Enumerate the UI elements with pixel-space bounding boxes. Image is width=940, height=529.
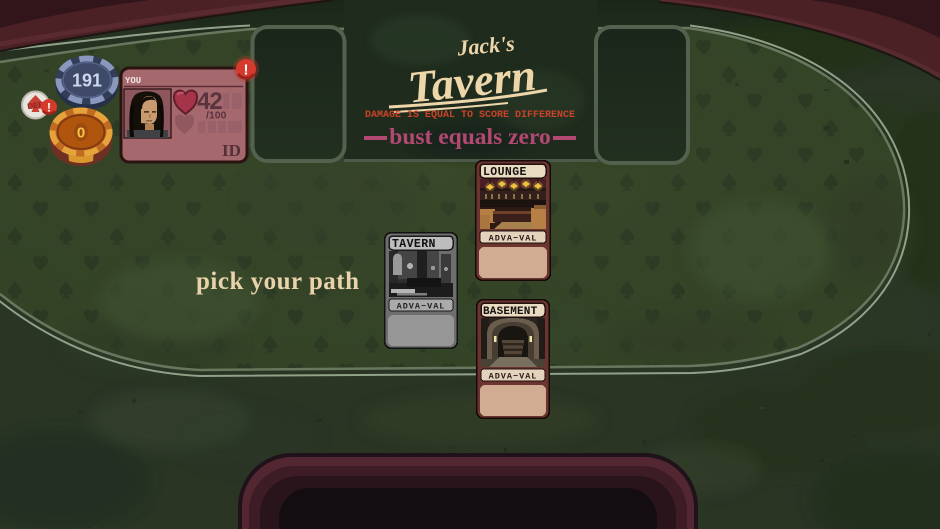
svg-text:BASEMENT: BASEMENT	[483, 306, 538, 318]
svg-text:191: 191	[72, 71, 102, 91]
svg-text:/100: /100	[206, 110, 227, 122]
svg-text:!: !	[47, 101, 51, 115]
svg-text:ADVA−VAL: ADVA−VAL	[489, 234, 538, 244]
svg-text:ADVA−VAL: ADVA−VAL	[397, 302, 446, 312]
svg-text:ADVA−VAL: ADVA−VAL	[489, 372, 538, 382]
svg-text:!: !	[244, 62, 249, 79]
svg-text:ID: ID	[222, 141, 241, 160]
svg-text:TAVERN: TAVERN	[392, 238, 436, 251]
svg-text:LOUNGE: LOUNGE	[483, 166, 527, 179]
svg-text:0: 0	[77, 125, 85, 142]
